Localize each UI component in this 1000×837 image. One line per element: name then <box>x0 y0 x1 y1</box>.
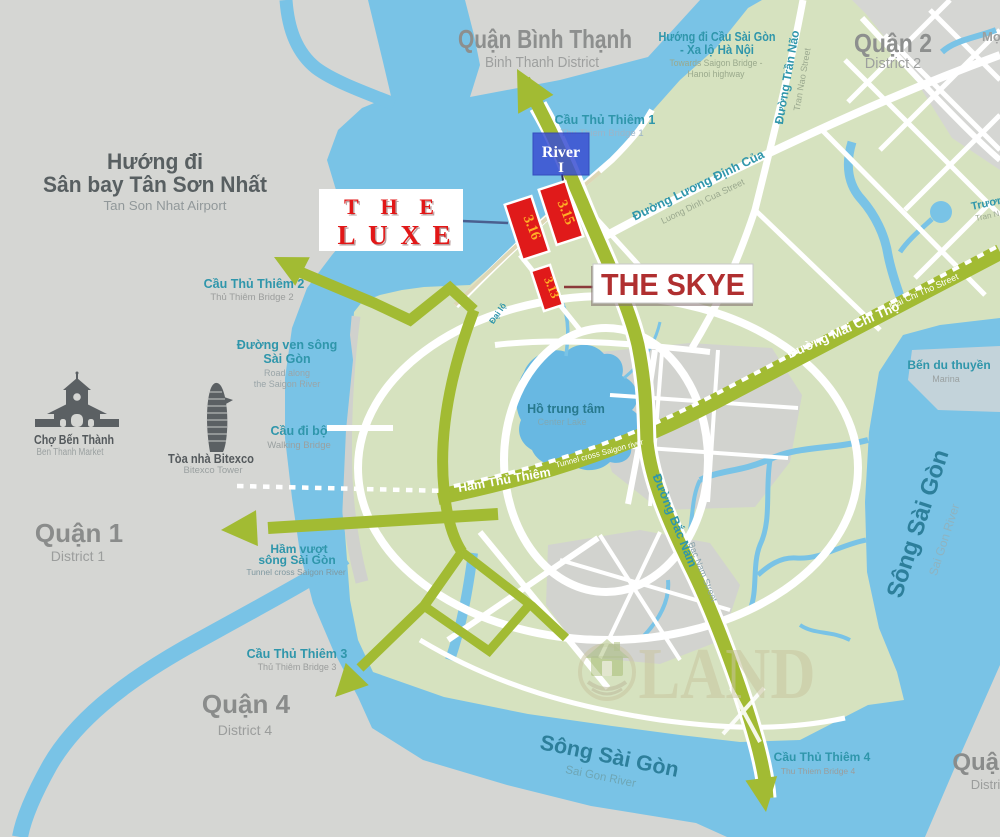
svg-text:- Xa lộ Hà Nội: - Xa lộ Hà Nội <box>680 43 754 57</box>
svg-text:the Saigon River: the Saigon River <box>254 379 321 389</box>
svg-text:sông Sài Gòn: sông Sài Gòn <box>258 553 335 567</box>
svg-text:Tunnel cross Saigon River: Tunnel cross Saigon River <box>246 567 346 577</box>
svg-text:Ben Thanh Market: Ben Thanh Market <box>37 447 104 458</box>
svg-text:I: I <box>558 160 564 176</box>
svg-text:District 1: District 1 <box>51 548 106 564</box>
svg-text:Cầu đi bộ: Cầu đi bộ <box>271 424 328 438</box>
svg-text:Cầu Thủ Thiêm 4: Cầu Thủ Thiêm 4 <box>774 750 871 764</box>
svg-text:Sân bay Tân Sơn Nhất: Sân bay Tân Sơn Nhất <box>43 172 268 197</box>
svg-text:District 7: District 7 <box>971 777 1000 792</box>
svg-text:Marina: Marina <box>932 374 960 384</box>
svg-text:District 4: District 4 <box>218 722 273 738</box>
svg-text:Cầu Thủ Thiêm 2: Cầu Thủ Thiêm 2 <box>204 277 305 291</box>
svg-text:Thu Thiem Bridge 4: Thu Thiem Bridge 4 <box>781 766 856 776</box>
svg-text:Bến du thuyền: Bến du thuyền <box>907 358 990 372</box>
svg-text:LAND: LAND <box>639 633 816 714</box>
svg-text:Mọt: Mọt <box>982 29 1000 44</box>
svg-text:Quận Bình Thạnh: Quận Bình Thạnh <box>458 24 632 54</box>
svg-text:Center Lake: Center Lake <box>537 417 586 427</box>
svg-text:Towards Saigon Bridge -: Towards Saigon Bridge - <box>670 58 763 68</box>
svg-text:Binh Thanh District: Binh Thanh District <box>485 55 599 71</box>
svg-text:Chợ Bến Thành: Chợ Bến Thành <box>34 432 114 447</box>
svg-text:Tòa nhà Bitexco: Tòa nhà Bitexco <box>168 451 254 466</box>
svg-text:District 2: District 2 <box>865 56 921 72</box>
svg-text:Đường ven sông: Đường ven sông <box>237 338 338 352</box>
svg-text:Tan Son Nhat Airport: Tan Son Nhat Airport <box>104 198 227 213</box>
svg-text:Thủ Thiêm Bridge 3: Thủ Thiêm Bridge 3 <box>258 662 337 672</box>
svg-text:THE SKYE: THE SKYE <box>601 267 745 302</box>
svg-text:Cầu Thủ Thiêm 3: Cầu Thủ Thiêm 3 <box>247 647 348 661</box>
svg-text:Quận 4: Quận 4 <box>202 689 291 719</box>
svg-text:Quận 1: Quận 1 <box>35 518 123 548</box>
svg-text:Hồ trung tâm: Hồ trung tâm <box>527 402 605 416</box>
svg-text:Cầu Thủ Thiêm 1: Cầu Thủ Thiêm 1 <box>555 113 656 127</box>
svg-text:Hanoi highway: Hanoi highway <box>688 69 745 79</box>
svg-text:Quận 2: Quận 2 <box>854 28 932 58</box>
svg-text:Hướng đi Cầu Sài Gòn: Hướng đi Cầu Sài Gòn <box>659 30 776 44</box>
svg-text:Road along: Road along <box>264 368 310 378</box>
svg-text:Hướng đi: Hướng đi <box>107 149 203 174</box>
svg-text:Bitexco Tower: Bitexco Tower <box>184 465 243 476</box>
svg-text:Thủ Thiêm Bridge 2: Thủ Thiêm Bridge 2 <box>210 292 293 303</box>
svg-text:THE: THE <box>344 194 434 219</box>
svg-text:Quận 7: Quận 7 <box>952 749 1000 776</box>
svg-text:River: River <box>542 144 580 161</box>
svg-text:Walking Bridge: Walking Bridge <box>267 440 331 451</box>
svg-text:Sài Gòn: Sài Gòn <box>263 352 310 366</box>
